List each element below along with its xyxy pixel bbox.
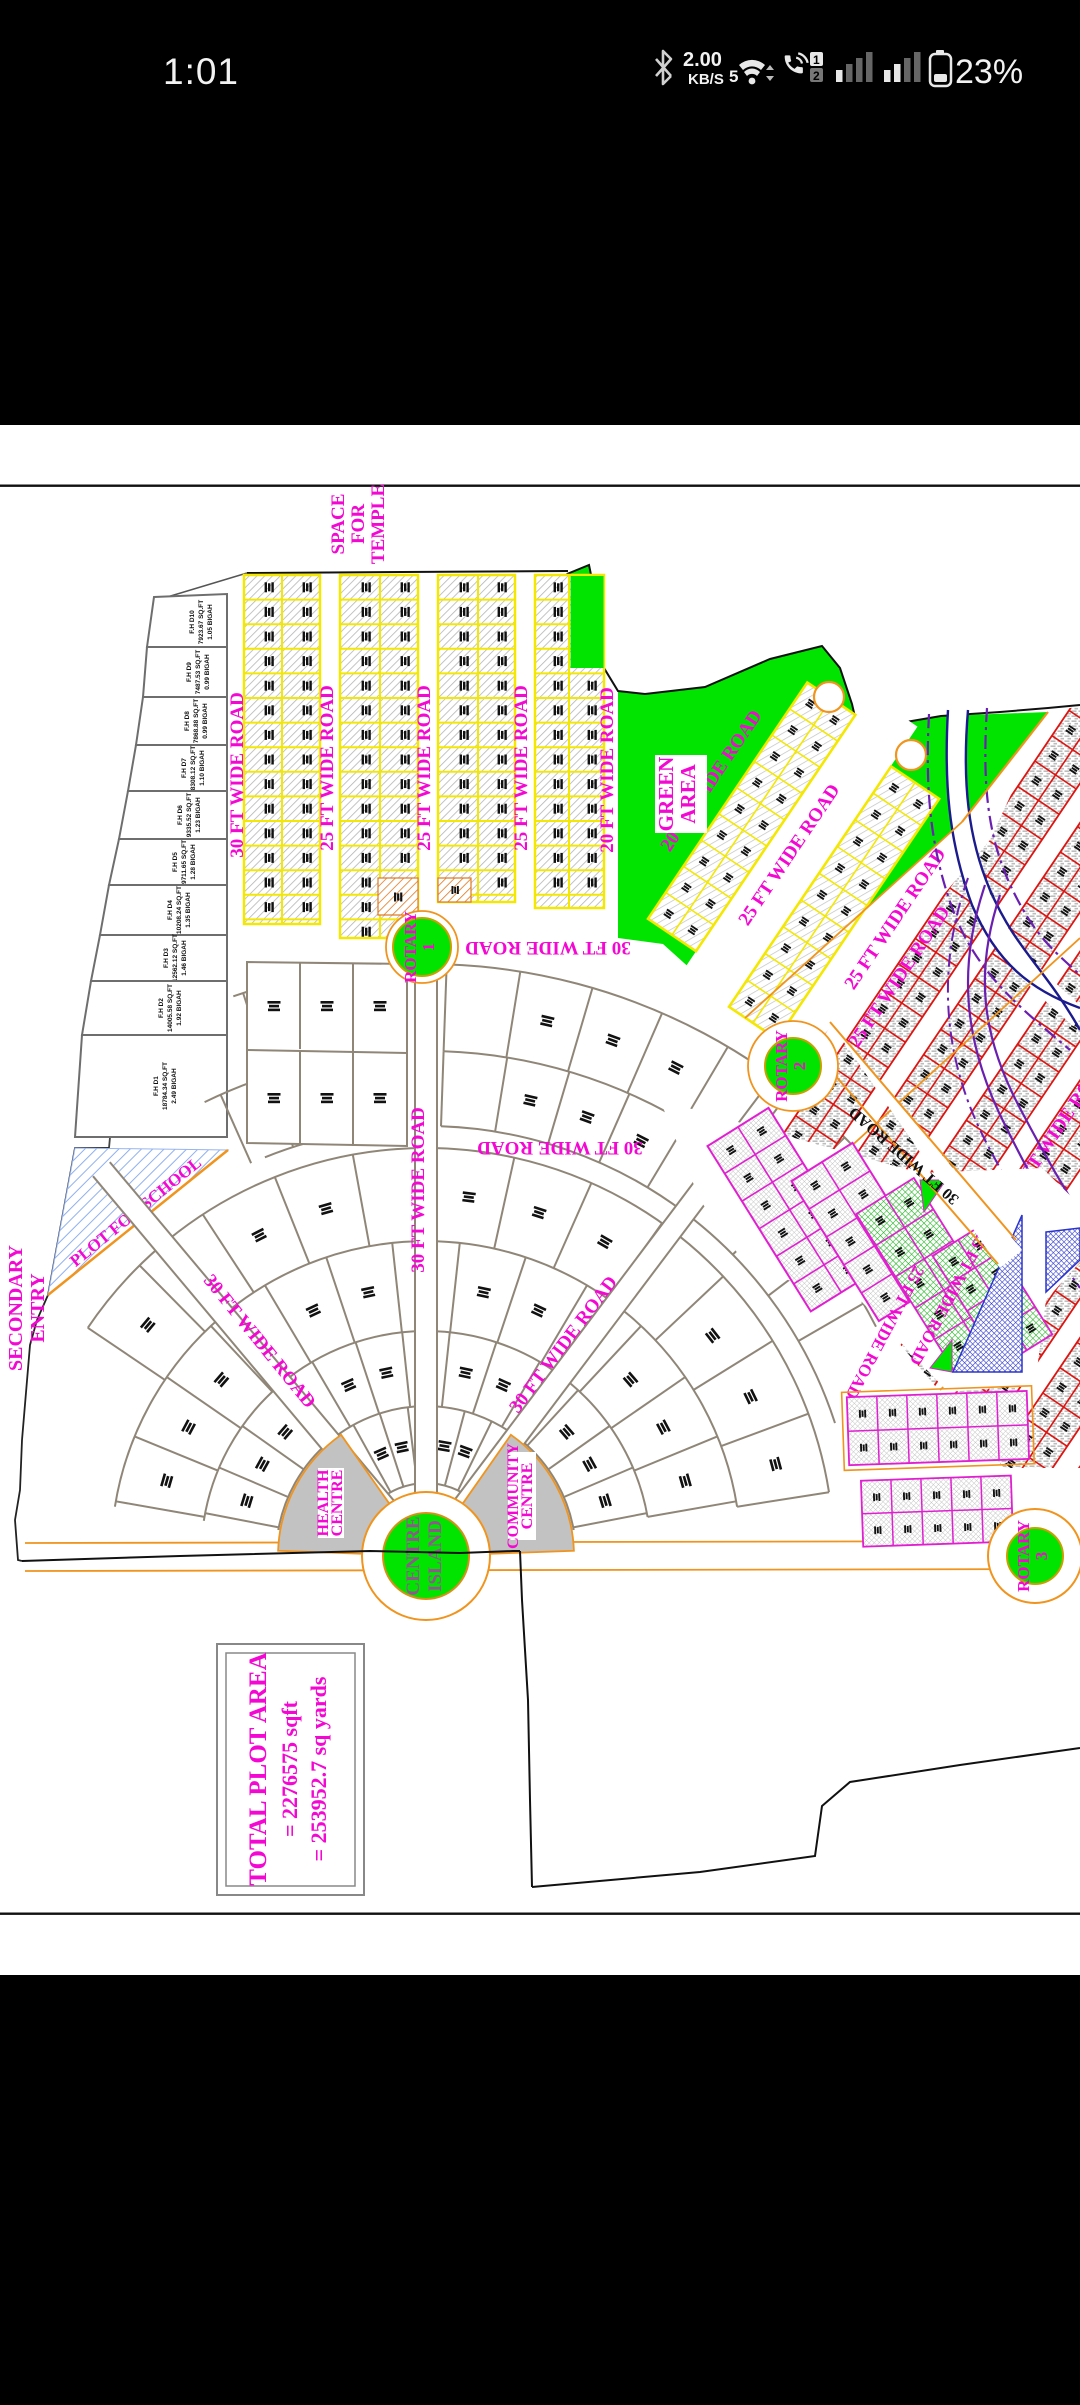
svg-text:CENTRE: CENTRE	[519, 1463, 536, 1530]
svg-text:1.28 BIGAH: 1.28 BIGAH	[190, 844, 197, 880]
svg-text:10208.24 SQ.FT: 10208.24 SQ.FT	[176, 886, 183, 934]
svg-text:SPACE: SPACE	[328, 494, 349, 555]
svg-text:GREEN: GREEN	[654, 757, 678, 832]
svg-text:1.10 BIGAH: 1.10 BIGAH	[199, 750, 206, 786]
svg-text:30 FT WIDE ROAD: 30 FT WIDE ROAD	[465, 937, 631, 958]
svg-text:SECONDARY: SECONDARY	[5, 1244, 27, 1371]
svg-text:F.H D9: F.H D9	[186, 662, 193, 682]
svg-text:FOR: FOR	[348, 504, 369, 544]
svg-text:25 FT WIDE ROAD: 25 FT WIDE ROAD	[414, 685, 435, 851]
svg-text:F.H D6: F.H D6	[177, 805, 184, 825]
svg-text:ENTRY: ENTRY	[27, 1273, 49, 1343]
svg-text:ROTARY: ROTARY	[1014, 1520, 1033, 1592]
svg-text:KB/S: KB/S	[688, 71, 724, 88]
svg-text:9335.52 SQ.FT: 9335.52 SQ.FT	[186, 793, 193, 837]
svg-text:20 FT WIDE ROAD: 20 FT WIDE ROAD	[597, 687, 618, 853]
svg-text:25 FT WIDE ROAD: 25 FT WIDE ROAD	[511, 685, 532, 851]
svg-text:F.H D5: F.H D5	[172, 852, 179, 872]
svg-text:AREA: AREA	[676, 763, 700, 823]
svg-text:TOTAL PLOT AREA: TOTAL PLOT AREA	[245, 1652, 272, 1885]
svg-text:7487.53 SQ.FT: 7487.53 SQ.FT	[195, 650, 202, 694]
svg-text:1.05 BIGAH: 1.05 BIGAH	[207, 604, 214, 640]
svg-text:2: 2	[813, 69, 820, 83]
svg-text:23%: 23%	[955, 53, 1023, 91]
svg-text:1: 1	[419, 943, 438, 952]
svg-text:F.H D1: F.H D1	[153, 1076, 160, 1096]
svg-text:30 FT WIDE ROAD: 30 FT WIDE ROAD	[408, 1107, 429, 1273]
svg-text:9711.65 SQ.FT: 9711.65 SQ.FT	[181, 840, 188, 884]
svg-text:5: 5	[729, 67, 738, 86]
svg-text:CENTRE: CENTRE	[329, 1470, 346, 1537]
svg-text:8308.12 SQ.FT: 8308.12 SQ.FT	[190, 746, 197, 790]
svg-text:2: 2	[790, 1062, 809, 1071]
svg-text:ROTARY: ROTARY	[401, 911, 420, 983]
svg-text:12562.12 SQ.FT: 12562.12 SQ.FT	[172, 934, 179, 982]
svg-text:CENTRE: CENTRE	[403, 1516, 424, 1595]
svg-text:1:01: 1:01	[163, 51, 239, 92]
svg-text:30 FT WIDE ROAD: 30 FT WIDE ROAD	[227, 692, 248, 858]
svg-text:= 253952.7 sq yards: = 253952.7 sq yards	[306, 1676, 331, 1861]
svg-text:18784.34 SQ.FT: 18784.34 SQ.FT	[162, 1062, 169, 1110]
svg-text:F.H D2: F.H D2	[158, 998, 165, 1018]
svg-text:F.H D10: F.H D10	[189, 610, 196, 634]
svg-text:25 FT WIDE ROAD: 25 FT WIDE ROAD	[317, 685, 338, 851]
svg-text:F.H D8: F.H D8	[184, 711, 191, 731]
svg-text:1: 1	[813, 53, 820, 67]
svg-text:F.H D7: F.H D7	[181, 758, 188, 778]
svg-text:14005.58 SQ.FT: 14005.58 SQ.FT	[167, 984, 174, 1032]
svg-text:F.H D3: F.H D3	[163, 948, 170, 968]
svg-text:1.46 BIGAH: 1.46 BIGAH	[181, 940, 188, 976]
svg-text:2.00: 2.00	[683, 49, 722, 71]
svg-text:0.99 BIGAH: 0.99 BIGAH	[202, 703, 209, 739]
svg-text:ROTARY: ROTARY	[772, 1030, 791, 1102]
svg-text:0.99 BIGAH: 0.99 BIGAH	[204, 654, 211, 690]
svg-text:= 2276575 sqft: = 2276575 sqft	[277, 1700, 302, 1837]
svg-text:1.35 BIGAH: 1.35 BIGAH	[185, 892, 192, 928]
svg-text:F.H D4: F.H D4	[167, 900, 174, 920]
svg-text:TEMPLE: TEMPLE	[368, 484, 389, 564]
svg-text:7868.88 SQ.FT: 7868.88 SQ.FT	[193, 699, 200, 743]
svg-text:7923.67 SQ.FT: 7923.67 SQ.FT	[198, 600, 205, 644]
svg-text:2.49 BIGAH: 2.49 BIGAH	[171, 1068, 178, 1104]
svg-text:1.23 BIGAH: 1.23 BIGAH	[195, 797, 202, 833]
svg-text:3: 3	[1032, 1552, 1051, 1561]
svg-text:30 FT WIDE ROAD: 30 FT WIDE ROAD	[477, 1137, 643, 1158]
svg-text:ISLAND: ISLAND	[425, 1520, 446, 1592]
svg-text:1.92 BIGAH: 1.92 BIGAH	[176, 990, 183, 1026]
